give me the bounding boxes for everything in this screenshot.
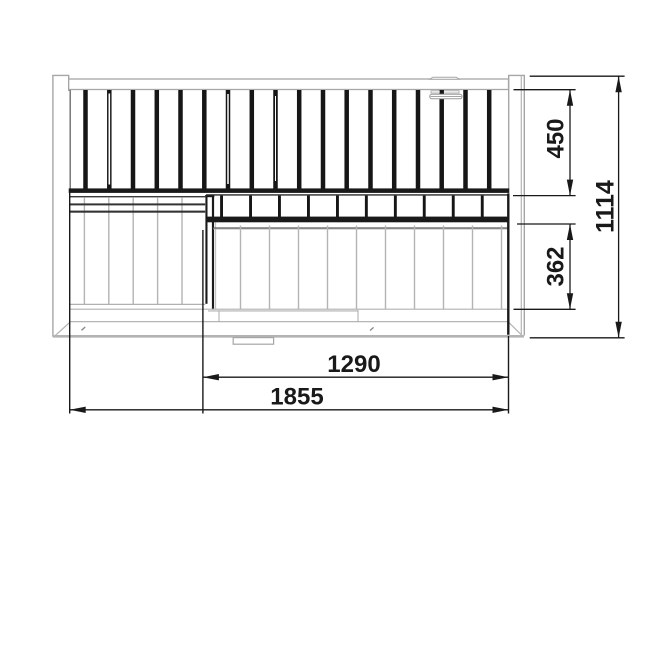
svg-text:1290: 1290 — [327, 351, 380, 378]
svg-text:1855: 1855 — [270, 383, 323, 410]
svg-text:1114: 1114 — [592, 180, 620, 233]
svg-text:450: 450 — [543, 118, 570, 158]
svg-text:362: 362 — [543, 246, 570, 286]
